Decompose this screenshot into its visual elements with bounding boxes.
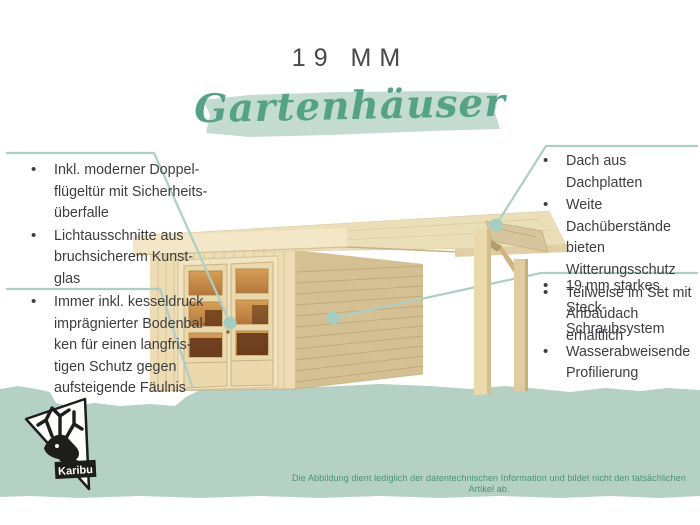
door-handle	[226, 330, 230, 334]
size-title: 19 MM	[0, 44, 700, 73]
feature-item: Immer inkl. kesseldruck imprägnierter Bo…	[27, 292, 222, 400]
feature-item: Wasserabweisende Profilierung	[539, 342, 699, 385]
feature-item: Inkl. moderner Doppel- flügeltür mit Sic…	[27, 160, 217, 225]
feature-item: Weite Dachüberstände bieten Witterungssc…	[539, 195, 699, 281]
infographic-page: Karibu 19 MM Gartenhäuser Inkl. moderner…	[0, 0, 700, 525]
callout-dot-door	[224, 317, 237, 330]
logo-brand-text: Karibu	[58, 464, 93, 478]
feature-item: 19 mm starkes Steck- Schraubsystem	[539, 276, 699, 341]
callout-dot-roof	[490, 219, 503, 232]
feature-item: Lichtausschnitte aus bruchsicherem Kunst…	[27, 226, 217, 291]
feature-list-base: Immer inkl. kesseldruck imprägnierter Bo…	[27, 292, 222, 400]
shed-side-wall	[295, 250, 423, 389]
callout-right-bottom: 19 mm starkes Steck- SchraubsystemWasser…	[539, 276, 699, 386]
disclaimer-text: Die Abbildung dient lediglich der datent…	[290, 473, 688, 495]
feature-item: Dach aus Dachplatten	[539, 151, 699, 194]
canopy-post-front	[474, 229, 491, 395]
feature-list-wall: 19 mm starkes Steck- SchraubsystemWasser…	[539, 276, 699, 385]
callout-left-bottom: Immer inkl. kesseldruck imprägnierter Bo…	[27, 292, 222, 401]
canopy-post-rear	[514, 259, 528, 391]
feature-list-door: Inkl. moderner Doppel- flügeltür mit Sic…	[27, 160, 217, 291]
callout-left-top: Inkl. moderner Doppel- flügeltür mit Sic…	[27, 160, 217, 292]
